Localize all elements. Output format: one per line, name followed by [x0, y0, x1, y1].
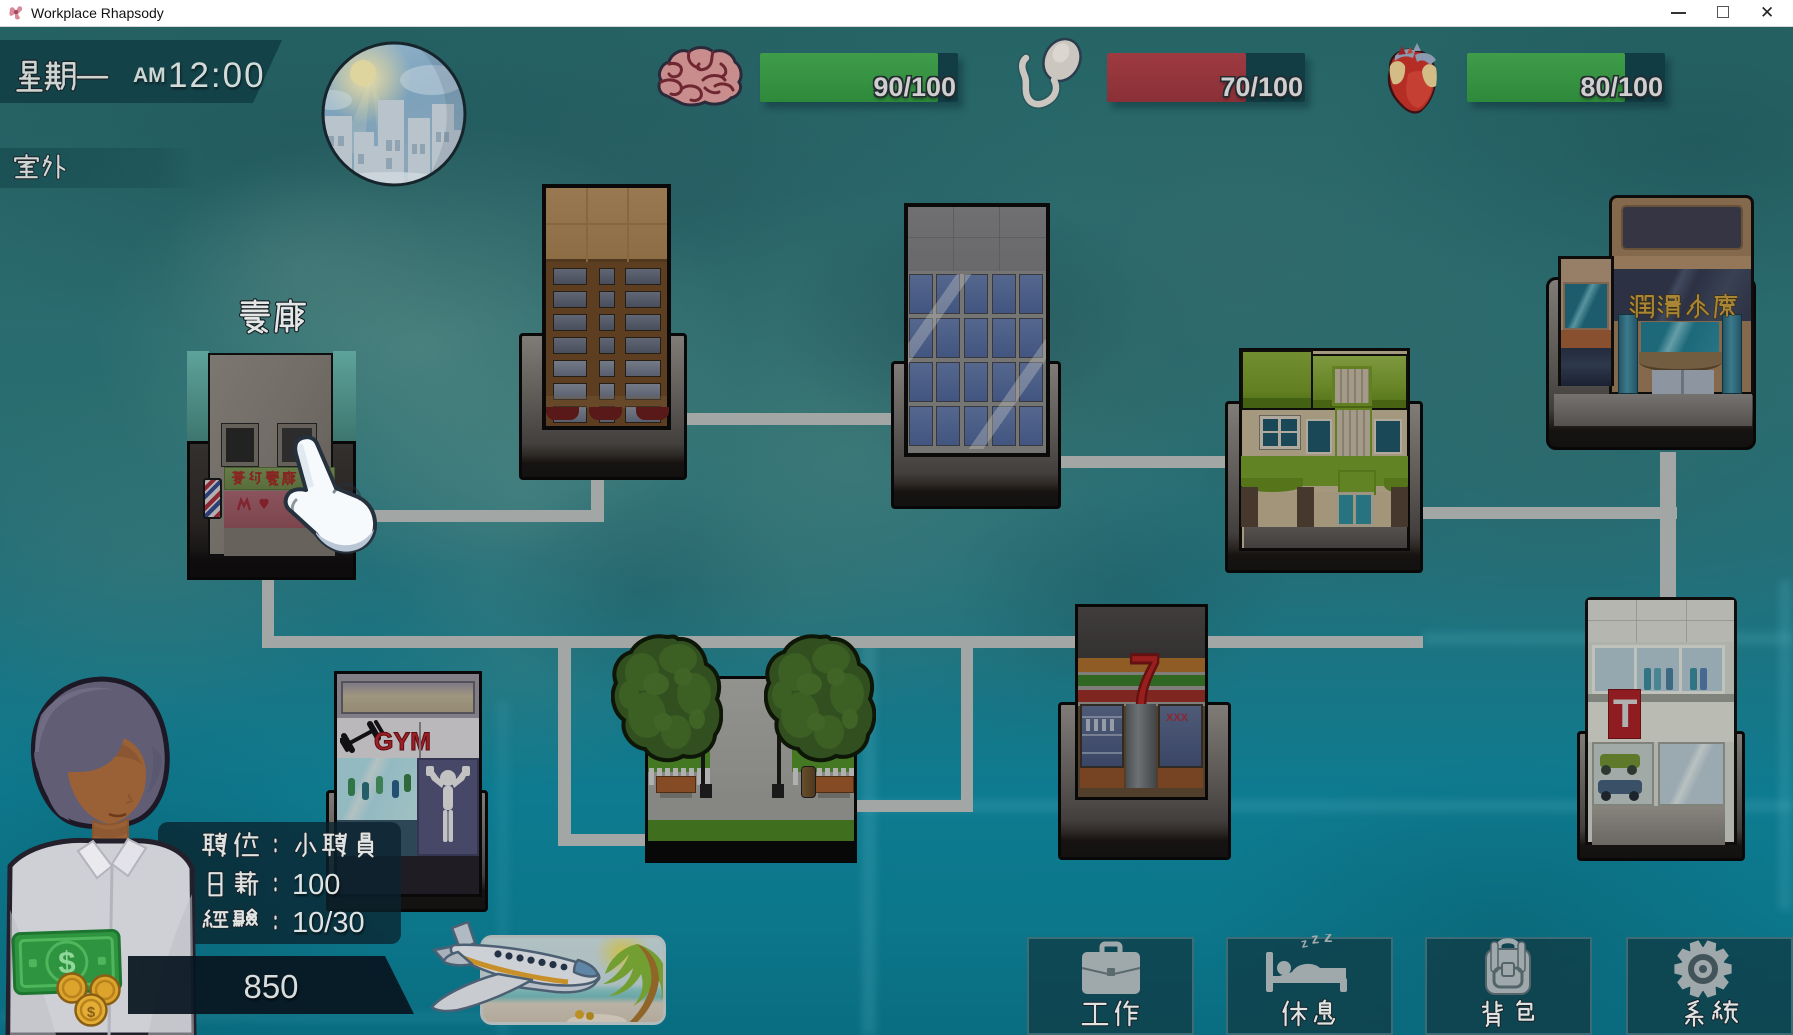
- svg-text:z: z: [1300, 935, 1310, 951]
- svg-text:z: z: [1310, 934, 1320, 948]
- svg-text:z: z: [1324, 934, 1333, 946]
- svg-text:$: $: [87, 1004, 96, 1021]
